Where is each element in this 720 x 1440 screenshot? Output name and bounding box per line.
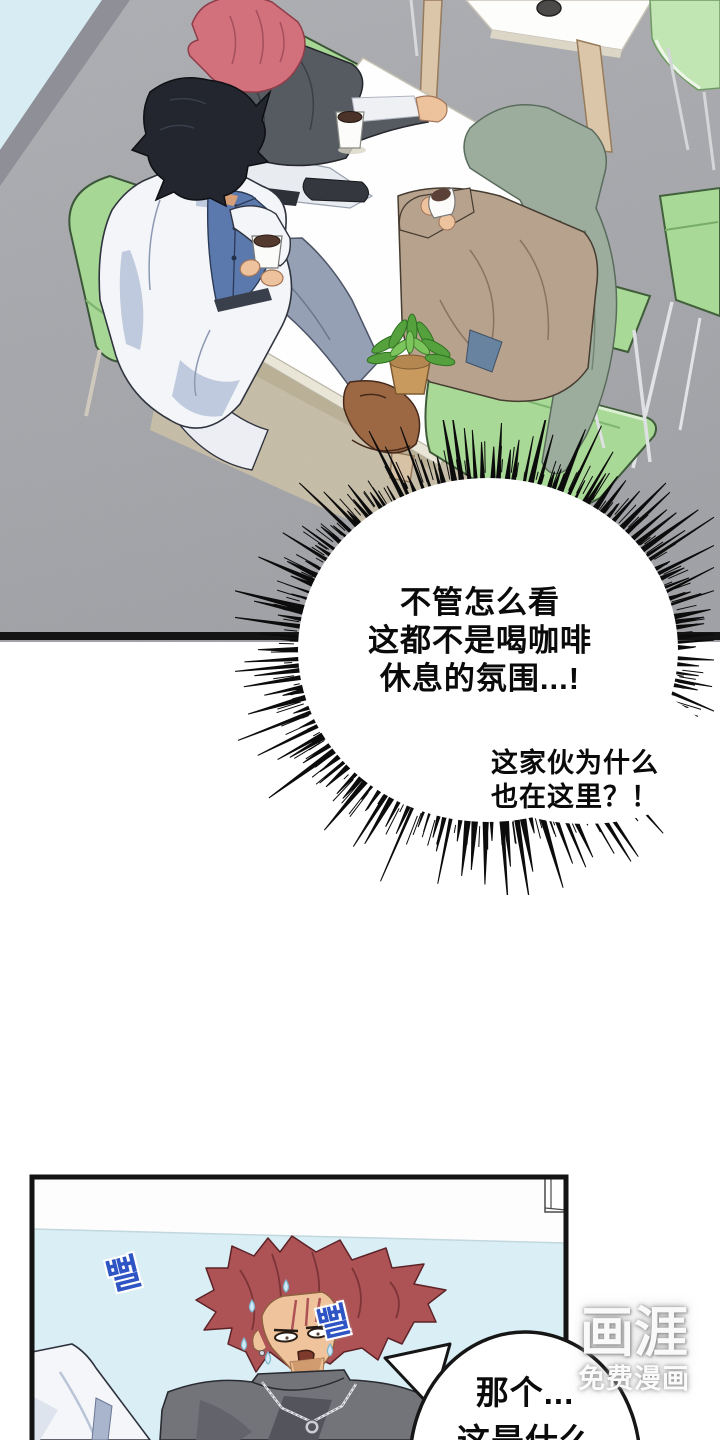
table-coffee-cup <box>336 112 366 155</box>
earring <box>260 1351 265 1356</box>
pink-shoe <box>303 178 368 202</box>
pupil <box>285 1336 288 1339</box>
man-hand <box>261 270 283 286</box>
watermark-logo: 画涯 <box>556 1306 712 1360</box>
door-frame <box>545 1178 566 1212</box>
comic-page: 不管怎么看 这都不是喝咖啡 休息的氛围...! 这家伙为什么 也在这里？！ <box>0 0 720 1440</box>
watermark: 画涯 免费漫画 <box>556 1306 712 1393</box>
speech-text-line2: 这是什么 <box>418 1414 632 1440</box>
polo-button <box>232 256 237 261</box>
coffee <box>254 235 280 247</box>
watermark-tagline: 免费漫画 <box>556 1366 712 1393</box>
far-coffee-cup <box>537 0 561 16</box>
thought-text-main: 不管怎么看 这都不是喝咖啡 休息的氛围...! <box>318 584 642 698</box>
thought-text-sub: 这家伙为什么 也在这里？！ <box>458 746 692 814</box>
